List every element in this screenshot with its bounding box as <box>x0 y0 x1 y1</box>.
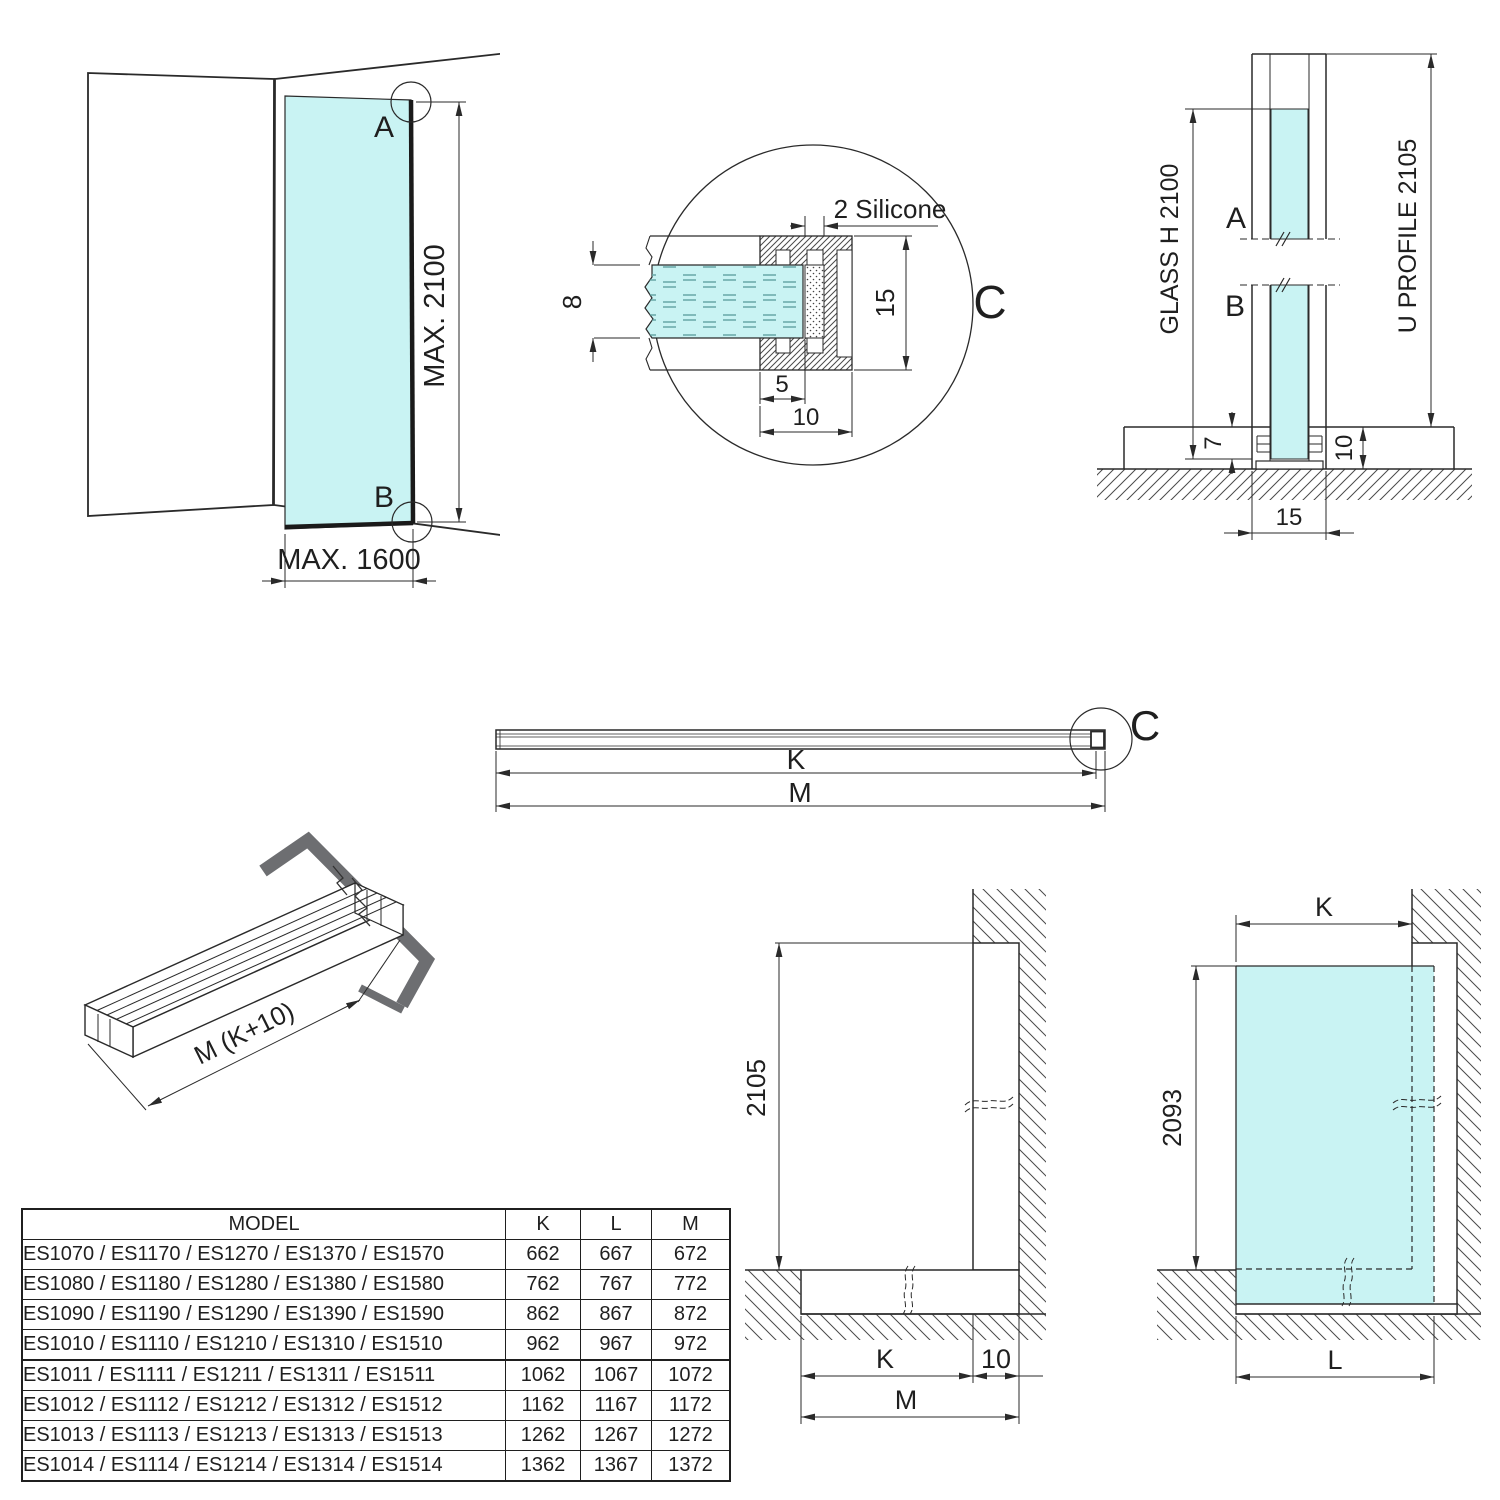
dim-glass-thickness: 8 <box>560 295 587 309</box>
floor-hatch-left <box>1157 1270 1236 1340</box>
cell-model: ES1013 / ES1113 / ES1213 / ES1313 / ES15… <box>22 1421 506 1451</box>
dim-profile-width: 15 <box>1276 504 1303 531</box>
table-row: ES1012 / ES1112 / ES1212 / ES1312 / ES15… <box>22 1391 730 1421</box>
floor-hatch <box>1097 469 1472 500</box>
fig-front-view-right: K 2093 L <box>1150 870 1500 1450</box>
dim-l: L <box>1327 1345 1342 1375</box>
header-model: MODEL <box>22 1209 506 1240</box>
dim-m: M <box>895 1385 918 1415</box>
dim-profile-height: 10 <box>1331 435 1358 462</box>
dim-offset: 10 <box>981 1344 1011 1374</box>
fig-vertical-section: A B GLASS H 2100 U PROFILE 2105 7 10 15 <box>1090 20 1500 580</box>
bottom-channel <box>1256 461 1323 469</box>
dim-k: K <box>1315 892 1333 922</box>
cell-model: ES1011 / ES1111 / ES1211 / ES1311 / ES15… <box>22 1360 506 1391</box>
dim-outer-width: 10 <box>793 404 820 431</box>
dim-profile-height: 15 <box>870 289 900 318</box>
header-l: L <box>581 1209 652 1240</box>
label-point-b: B <box>1225 290 1245 323</box>
model-table: MODEL K L M ES1070 / ES1170 / ES1270 / E… <box>21 1208 731 1482</box>
glass-panel <box>285 96 413 529</box>
profile-edge-vertical <box>411 100 413 523</box>
wall-left <box>88 73 274 516</box>
table-row: ES1014 / ES1114 / ES1214 / ES1314 / ES15… <box>22 1451 730 1482</box>
dim-k: K <box>787 744 806 775</box>
dim-height: 2105 <box>741 1059 771 1117</box>
angle-cover-flange <box>360 988 403 1010</box>
table-row: ES1011 / ES1111 / ES1211 / ES1311 / ES15… <box>22 1360 730 1391</box>
dim-max-width: MAX. 1600 <box>277 544 420 576</box>
header-k: K <box>506 1209 581 1240</box>
label-detail-c: C <box>1130 702 1160 749</box>
fig-corner-perspective: A B MAX. 2100 MAX. 1600 <box>30 20 500 595</box>
silicone-seal <box>805 265 824 338</box>
header-m: M <box>652 1209 731 1240</box>
dim-glass-height: GLASS H 2100 <box>1156 164 1184 335</box>
dim-height: 2093 <box>1157 1089 1187 1147</box>
floor-hatch <box>801 1314 1046 1340</box>
bar-end-cap <box>1091 732 1104 748</box>
glass-panel <box>1236 966 1434 1304</box>
dim-k: K <box>876 1344 894 1374</box>
table-row: ES1013 / ES1113 / ES1213 / ES1313 / ES15… <box>22 1421 730 1451</box>
floor-hatch-left <box>745 1270 801 1340</box>
table-header-row: MODEL K L M <box>22 1209 730 1240</box>
dim-inner-width: 5 <box>775 371 788 398</box>
floor-profile <box>1236 1304 1457 1314</box>
fig-front-view-left: 2105 K 10 M <box>740 870 1070 1450</box>
table-row: ES1090 / ES1190 / ES1290 / ES1390 / ES15… <box>22 1300 730 1330</box>
cell-model: ES1012 / ES1112 / ES1212 / ES1312 / ES15… <box>22 1391 506 1421</box>
drawing-canvas: A B MAX. 2100 MAX. 1600 <box>0 0 1500 1500</box>
silicone-callout: 2 Silicone <box>834 194 947 224</box>
label-point-b: B <box>374 481 394 514</box>
dim-glass-inset: 7 <box>1200 436 1227 449</box>
wall-profile <box>973 943 1019 1270</box>
cell-model: ES1080 / ES1180 / ES1280 / ES1380 / ES15… <box>22 1270 506 1300</box>
cell-model: ES1070 / ES1170 / ES1270 / ES1370 / ES15… <box>22 1240 506 1270</box>
glass-upper <box>1271 109 1308 239</box>
model-table-container: MODEL K L M ES1070 / ES1170 / ES1270 / E… <box>21 1208 731 1482</box>
label-point-a: A <box>374 111 394 144</box>
cell-model: ES1014 / ES1114 / ES1214 / ES1314 / ES15… <box>22 1451 506 1482</box>
floor-profile <box>801 1270 1019 1314</box>
table-row: ES1080 / ES1180 / ES1280 / ES1380 / ES15… <box>22 1270 730 1300</box>
dim-profile-length: U PROFILE 2105 <box>1394 139 1422 334</box>
table-row: ES1070 / ES1170 / ES1270 / ES1370 / ES15… <box>22 1240 730 1270</box>
dim-m: M <box>788 777 811 808</box>
floor-hatch <box>1236 1314 1481 1340</box>
table-row: ES1010 / ES1110 / ES1210 / ES1310 / ES15… <box>22 1330 730 1361</box>
cell-model: ES1090 / ES1190 / ES1290 / ES1390 / ES15… <box>22 1300 506 1330</box>
cell-model: ES1010 / ES1110 / ES1210 / ES1310 / ES15… <box>22 1330 506 1361</box>
fig-profile-3d: M (K+10) <box>50 820 470 1130</box>
fig-profile-bar: C K M <box>490 695 1190 825</box>
label-detail-c: C <box>973 276 1006 328</box>
label-point-a: A <box>1226 202 1246 235</box>
glass-lower <box>1271 285 1308 459</box>
dim-max-height: MAX. 2100 <box>419 244 451 387</box>
fig-detail-c: 8 15 5 10 2 Silicone C <box>560 110 1040 560</box>
